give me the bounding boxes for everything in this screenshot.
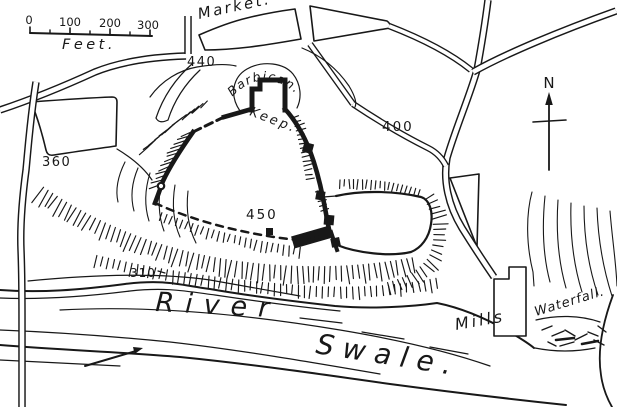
hall-label: Hall.	[297, 229, 326, 247]
scale-tick-200: 200	[99, 16, 121, 30]
keep-label: Keep.	[248, 105, 299, 137]
hachure-row	[159, 213, 300, 259]
west-gate	[158, 183, 164, 189]
spot-height-310: 310	[130, 266, 156, 280]
hachure-row	[149, 133, 190, 189]
west-wall-dashed	[193, 117, 224, 132]
spot-height-400: 400	[382, 119, 414, 135]
east-enclosure-outline	[336, 192, 432, 254]
south-wall-dashed	[155, 203, 306, 241]
hachure-row	[32, 187, 415, 285]
market-block-east	[310, 6, 390, 41]
castle-map: Hall. 0 100 200 300 Feet. N Market. Barb…	[0, 0, 617, 407]
scale-tick-0: 0	[25, 13, 32, 27]
waterfall-texture	[535, 316, 606, 351]
hachure-row	[139, 101, 207, 155]
road-to-bridge	[21, 82, 36, 407]
hachure-row	[388, 194, 449, 295]
river-name-word1: River	[155, 287, 281, 324]
east-tower-2	[315, 190, 325, 200]
east-tower-3	[324, 215, 335, 226]
river-flow-arrow-icon	[85, 347, 143, 366]
scale-unit-label: Feet.	[62, 37, 116, 53]
north-arrow-icon	[533, 92, 566, 170]
south-bank	[0, 345, 566, 405]
lane-market-to-castle	[310, 44, 353, 104]
river-name-word2: Swale.	[314, 327, 463, 382]
scale-bar: 0 100 200 300 Feet.	[25, 13, 159, 53]
east-valley-slope-lines	[528, 192, 617, 296]
road-fork-east	[473, 11, 616, 72]
road-market-to-fork	[389, 26, 471, 70]
road-below-400	[353, 104, 446, 166]
town-block-west	[31, 97, 117, 155]
scale-tick-300: 300	[137, 18, 159, 32]
east-bank	[600, 295, 613, 407]
road-northeast	[446, 0, 494, 277]
compass-rose: N	[533, 74, 566, 170]
spot-height-450: 450	[246, 207, 278, 223]
roads	[0, 0, 616, 407]
waterfall-label: Waterfall.	[533, 284, 607, 320]
hall-building: Hall.	[291, 226, 331, 249]
south-tower	[266, 228, 273, 235]
scale-tick-100: 100	[59, 15, 81, 29]
spot-height-360: 360	[42, 155, 71, 170]
compass-north-label: N	[543, 74, 554, 92]
spot-height-440: 440	[187, 55, 216, 70]
